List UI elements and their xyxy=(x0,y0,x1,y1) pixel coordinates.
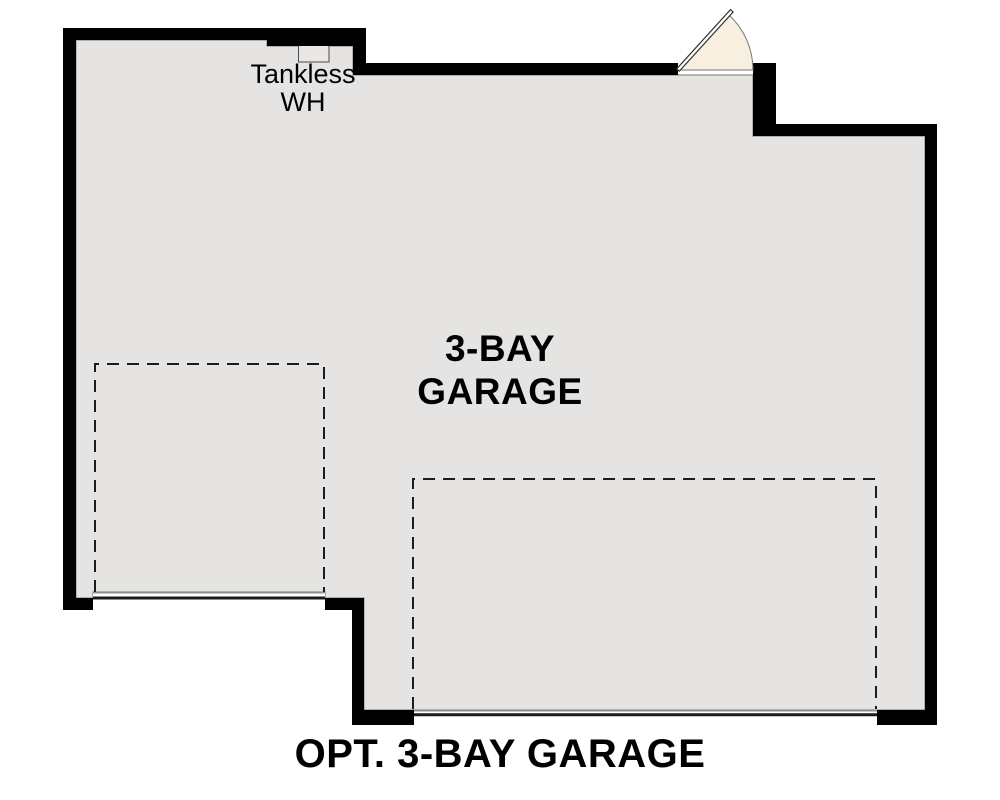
wall-mid-vertical xyxy=(352,598,364,725)
plan-caption: OPT. 3-BAY GARAGE xyxy=(295,733,706,775)
wall-stub-bottom-right xyxy=(877,710,937,725)
garage-door-main xyxy=(414,711,877,715)
garage-door-left xyxy=(93,593,325,598)
room-label: 3-BAY GARAGE xyxy=(417,327,582,413)
wall-top-step xyxy=(267,28,366,46)
water-heater-label: Tankless WH xyxy=(250,60,355,116)
room-label-line2: GARAGE xyxy=(417,370,582,413)
floor-plan-canvas: Tankless WH 3-BAY GARAGE OPT. 3-BAY GARA… xyxy=(0,0,1000,800)
door-swing-arc xyxy=(678,15,753,71)
entry-door xyxy=(677,10,753,72)
wall-top-mid xyxy=(353,63,678,75)
wall-step-right xyxy=(764,124,937,136)
wall-right xyxy=(925,124,937,725)
wall-left xyxy=(63,28,76,610)
room-label-line1: 3-BAY xyxy=(417,327,582,370)
water-heater-label-line2: WH xyxy=(250,88,355,116)
water-heater-label-line1: Tankless xyxy=(250,60,355,88)
wall-corner-left-bay xyxy=(325,598,364,610)
